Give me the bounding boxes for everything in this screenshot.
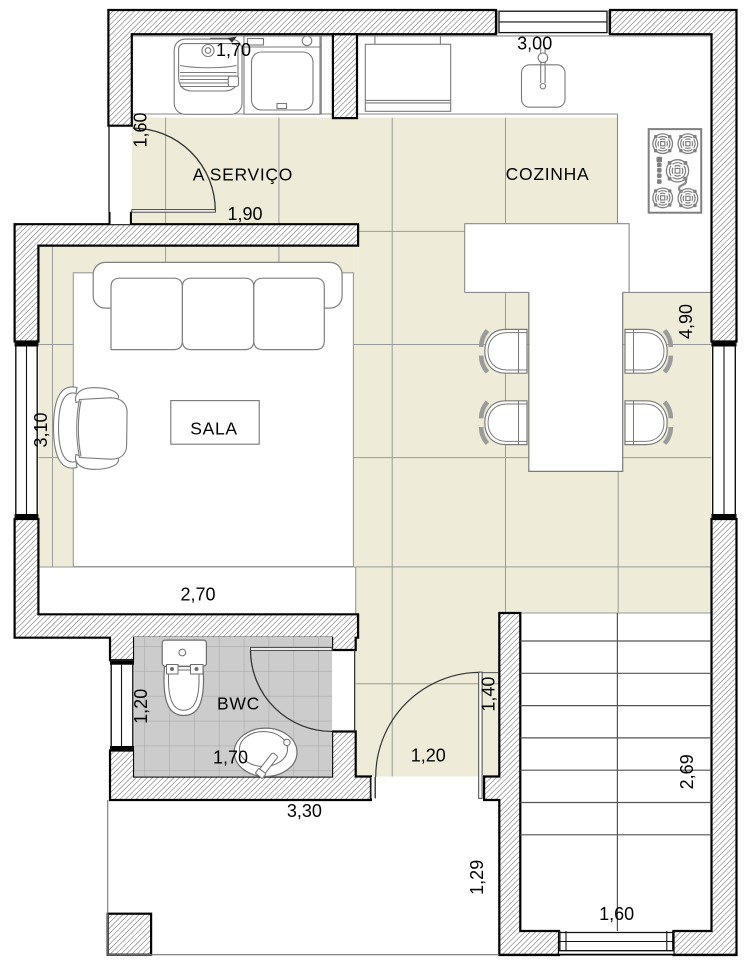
svg-text:1,90: 1,90 bbox=[227, 204, 262, 224]
svg-text:BWC: BWC bbox=[217, 694, 260, 714]
svg-text:3,00: 3,00 bbox=[517, 34, 552, 54]
svg-text:2,69: 2,69 bbox=[677, 754, 697, 789]
svg-text:1,70: 1,70 bbox=[216, 40, 251, 60]
svg-text:A SERVIÇO: A SERVIÇO bbox=[193, 165, 293, 185]
svg-text:1,20: 1,20 bbox=[131, 689, 151, 724]
svg-text:1,70: 1,70 bbox=[213, 748, 248, 768]
svg-text:SALA: SALA bbox=[190, 418, 238, 438]
svg-text:1,60: 1,60 bbox=[599, 904, 634, 924]
svg-text:1,60: 1,60 bbox=[131, 112, 151, 147]
svg-text:1,40: 1,40 bbox=[479, 677, 499, 712]
svg-text:1,20: 1,20 bbox=[411, 746, 446, 766]
svg-text:4,90: 4,90 bbox=[676, 304, 696, 339]
svg-text:COZINHA: COZINHA bbox=[506, 164, 590, 184]
svg-text:3,30: 3,30 bbox=[287, 801, 322, 821]
svg-text:1,29: 1,29 bbox=[467, 860, 487, 895]
svg-text:2,70: 2,70 bbox=[180, 585, 215, 605]
svg-text:3,10: 3,10 bbox=[31, 412, 51, 447]
